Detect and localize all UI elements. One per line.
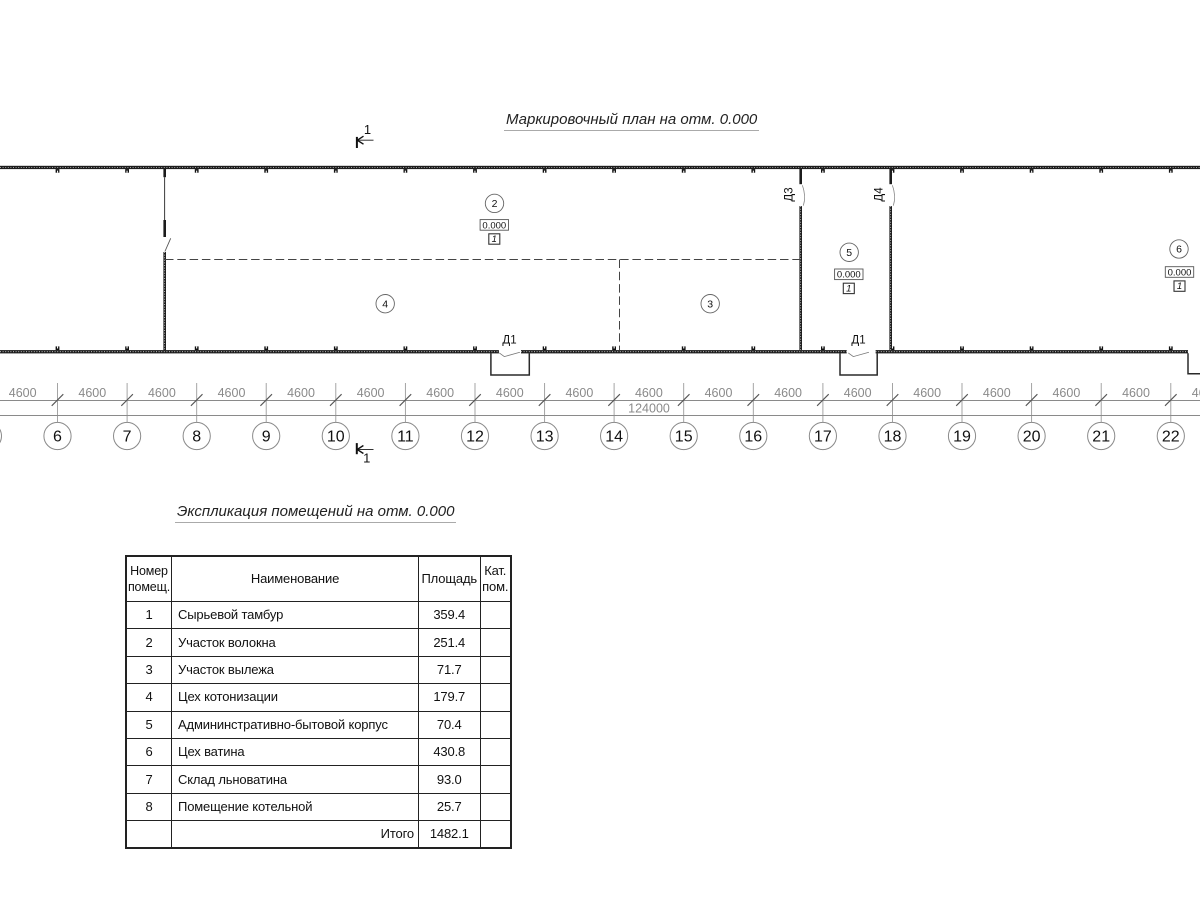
- svg-text:4600: 4600: [1122, 386, 1150, 400]
- svg-text:2: 2: [492, 198, 498, 210]
- svg-text:11: 11: [397, 429, 414, 446]
- svg-text:0.000: 0.000: [1168, 267, 1192, 278]
- svg-text:Д3: Д3: [784, 187, 796, 201]
- svg-text:4: 4: [382, 298, 388, 310]
- svg-text:4600: 4600: [705, 386, 733, 400]
- svg-text:7: 7: [123, 429, 132, 446]
- svg-text:6: 6: [53, 429, 62, 446]
- svg-text:4600: 4600: [635, 386, 663, 400]
- svg-text:15: 15: [675, 429, 693, 446]
- svg-text:4600: 4600: [913, 386, 941, 400]
- svg-text:4600: 4600: [774, 386, 802, 400]
- svg-text:1: 1: [492, 234, 497, 245]
- svg-text:9: 9: [262, 429, 271, 446]
- svg-text:1: 1: [1177, 281, 1182, 292]
- svg-text:20: 20: [1023, 429, 1041, 446]
- svg-text:12: 12: [466, 429, 484, 446]
- svg-text:4600: 4600: [426, 386, 454, 400]
- svg-text:1: 1: [846, 284, 851, 295]
- svg-text:4600: 4600: [218, 386, 246, 400]
- svg-text:14: 14: [605, 429, 623, 446]
- svg-text:Д1: Д1: [851, 335, 865, 347]
- svg-text:21: 21: [1092, 429, 1110, 446]
- svg-text:4600: 4600: [1192, 386, 1200, 400]
- svg-text:8: 8: [192, 429, 201, 446]
- svg-text:4600: 4600: [496, 386, 524, 400]
- svg-text:17: 17: [814, 429, 832, 446]
- svg-text:1: 1: [364, 122, 371, 137]
- svg-text:4600: 4600: [844, 386, 872, 400]
- svg-text:6: 6: [1176, 244, 1182, 256]
- svg-text:10: 10: [327, 429, 345, 446]
- svg-text:4600: 4600: [1052, 386, 1080, 400]
- svg-text:16: 16: [744, 429, 762, 446]
- svg-text:Д4: Д4: [874, 187, 886, 202]
- svg-text:13: 13: [536, 429, 554, 446]
- svg-text:3: 3: [707, 298, 713, 310]
- svg-text:4600: 4600: [78, 386, 106, 400]
- svg-text:4600: 4600: [287, 386, 315, 400]
- svg-text:Д1: Д1: [502, 335, 516, 347]
- svg-text:1: 1: [363, 451, 370, 466]
- svg-text:19: 19: [953, 429, 971, 446]
- svg-text:4600: 4600: [983, 386, 1011, 400]
- svg-text:4600: 4600: [148, 386, 176, 400]
- svg-text:124000: 124000: [628, 402, 670, 416]
- svg-text:22: 22: [1162, 429, 1180, 446]
- svg-text:4600: 4600: [565, 386, 593, 400]
- svg-text:0.000: 0.000: [837, 270, 861, 281]
- svg-text:4600: 4600: [357, 386, 385, 400]
- svg-text:5: 5: [846, 247, 852, 259]
- svg-text:18: 18: [884, 429, 902, 446]
- svg-text:0.000: 0.000: [482, 220, 506, 231]
- svg-text:4600: 4600: [9, 386, 37, 400]
